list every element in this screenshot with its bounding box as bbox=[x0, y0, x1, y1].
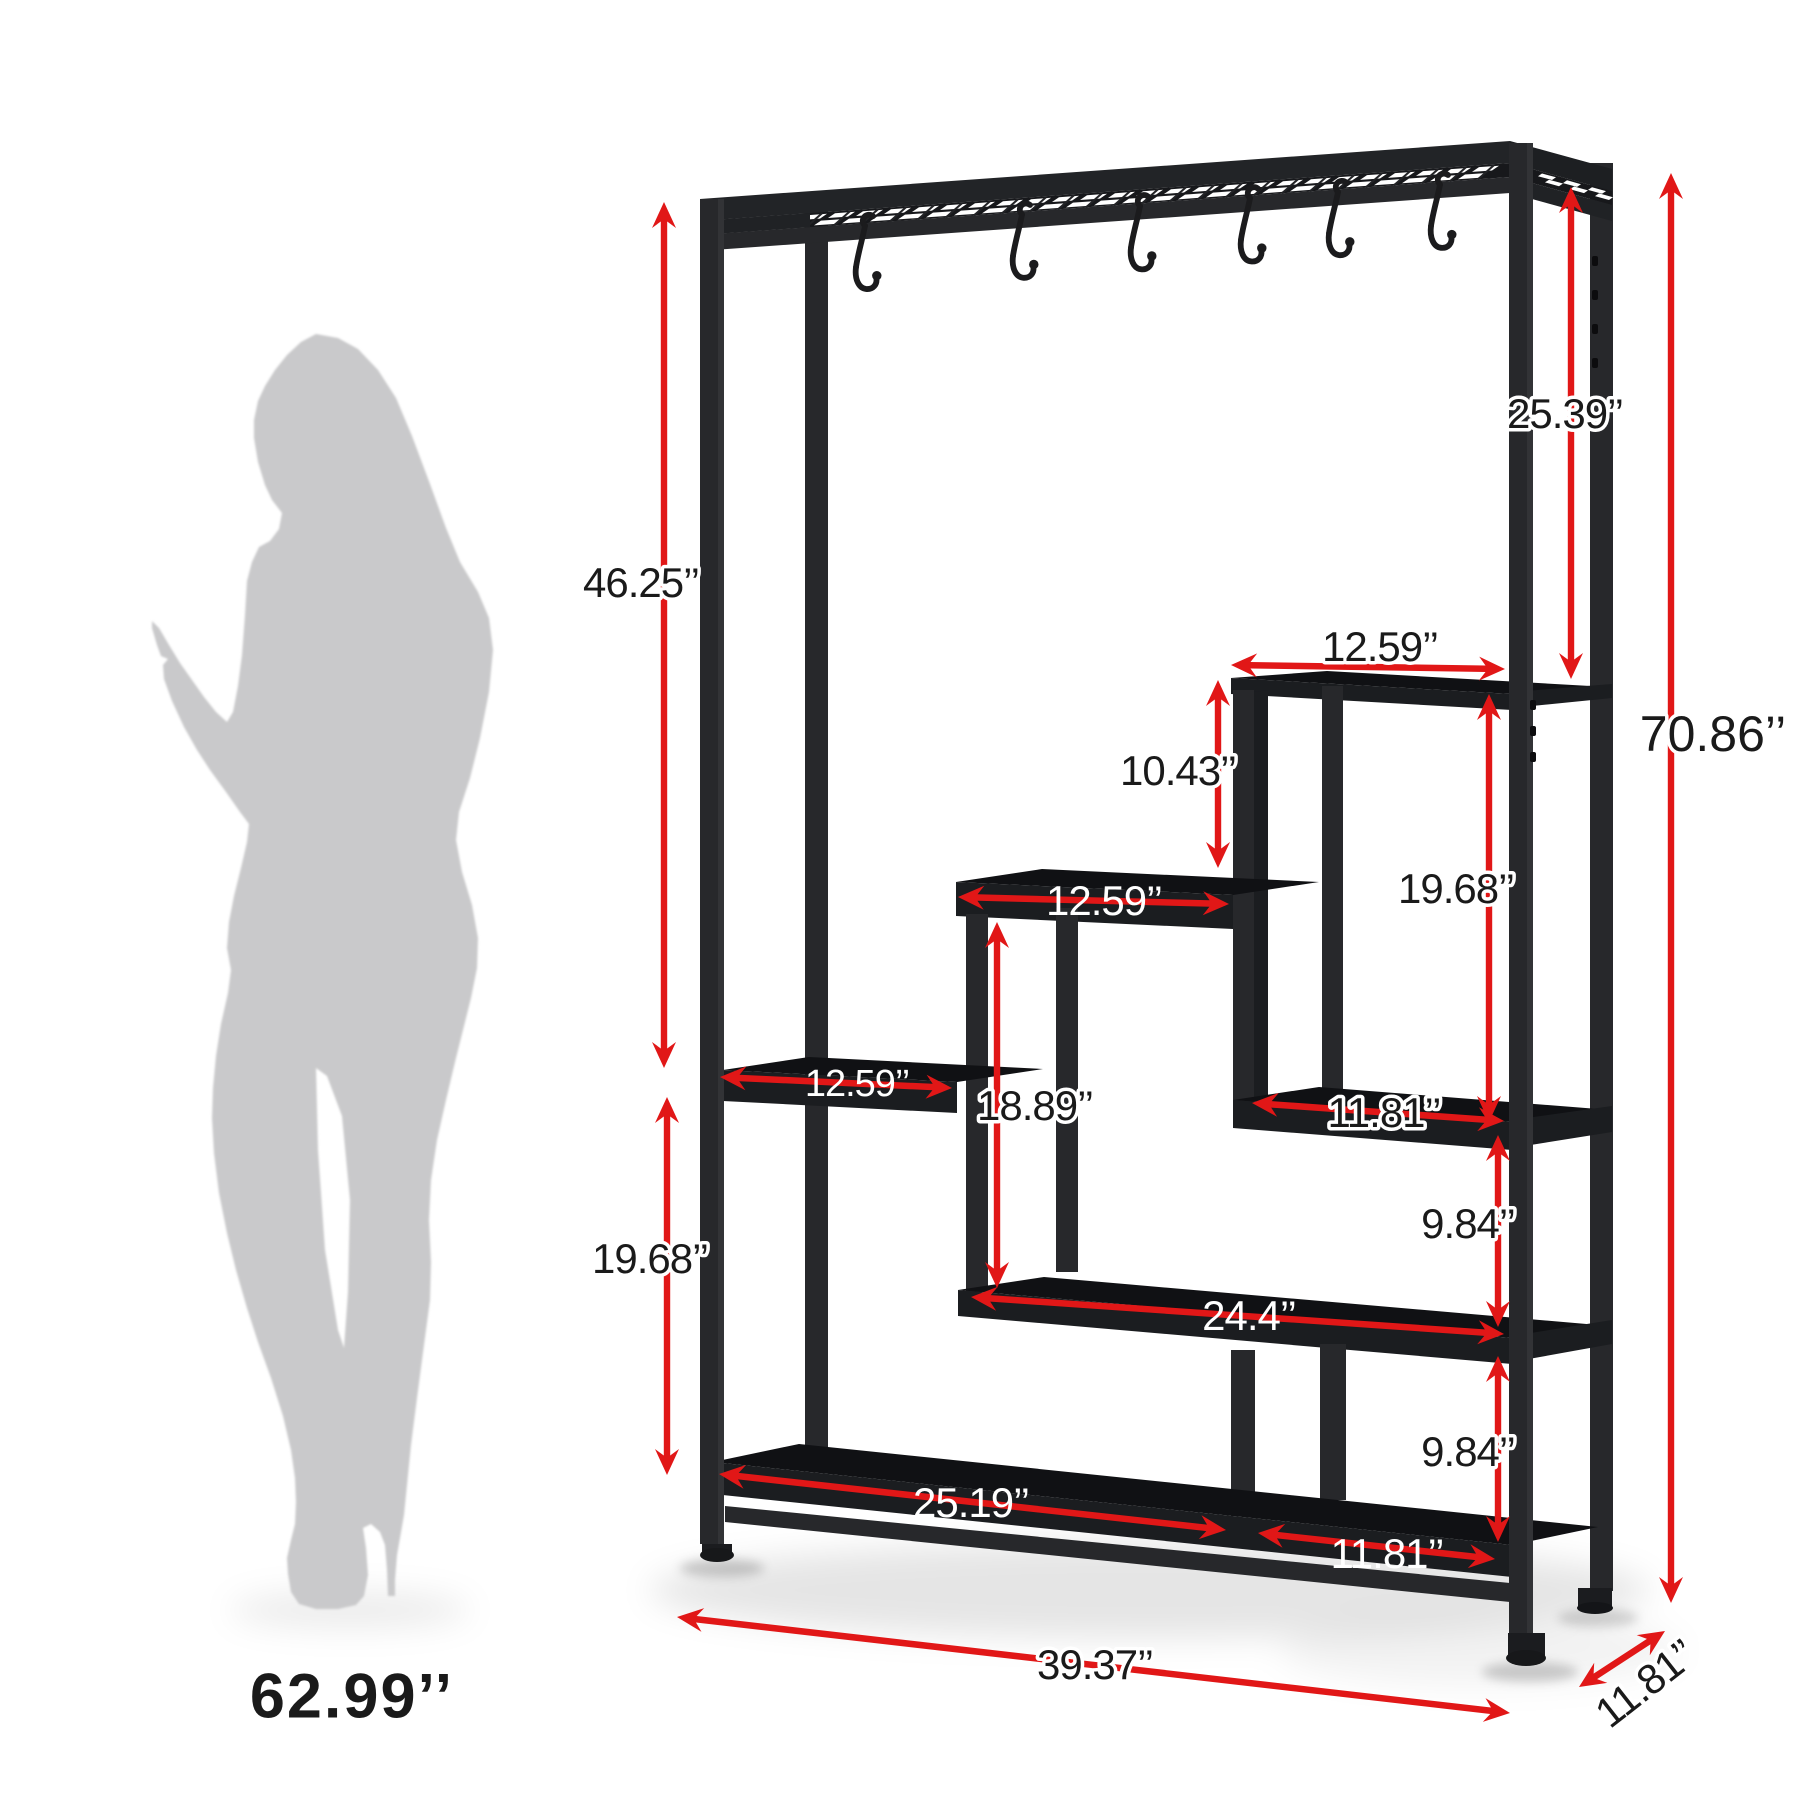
svg-text:25.39’’: 25.39’’ bbox=[1507, 390, 1623, 437]
svg-text:11.81’’: 11.81’’ bbox=[1331, 1530, 1444, 1577]
svg-text:12.59’’: 12.59’’ bbox=[1046, 877, 1162, 924]
svg-text:70.86’’: 70.86’’ bbox=[1640, 706, 1786, 762]
svg-text:19.68’’: 19.68’’ bbox=[1398, 865, 1514, 912]
svg-text:24.4’’: 24.4’’ bbox=[1202, 1292, 1296, 1339]
svg-text:10.43’’: 10.43’’ bbox=[1120, 747, 1236, 794]
svg-text:46.25’’: 46.25’’ bbox=[583, 559, 699, 606]
svg-text:11.81’’: 11.81’’ bbox=[1328, 1089, 1441, 1136]
svg-text:9.84’’: 9.84’’ bbox=[1421, 1200, 1515, 1247]
svg-text:18.89’’: 18.89’’ bbox=[977, 1082, 1093, 1129]
svg-text:12.59’’: 12.59’’ bbox=[1322, 623, 1438, 670]
svg-text:62.99’’: 62.99’’ bbox=[250, 1662, 454, 1732]
svg-text:25.19’’: 25.19’’ bbox=[913, 1479, 1029, 1526]
svg-text:9.84’’: 9.84’’ bbox=[1421, 1428, 1515, 1475]
svg-text:19.68’’: 19.68’’ bbox=[592, 1235, 708, 1282]
svg-text:39.37’’: 39.37’’ bbox=[1037, 1641, 1153, 1688]
svg-text:12.59’’: 12.59’’ bbox=[805, 1063, 909, 1105]
